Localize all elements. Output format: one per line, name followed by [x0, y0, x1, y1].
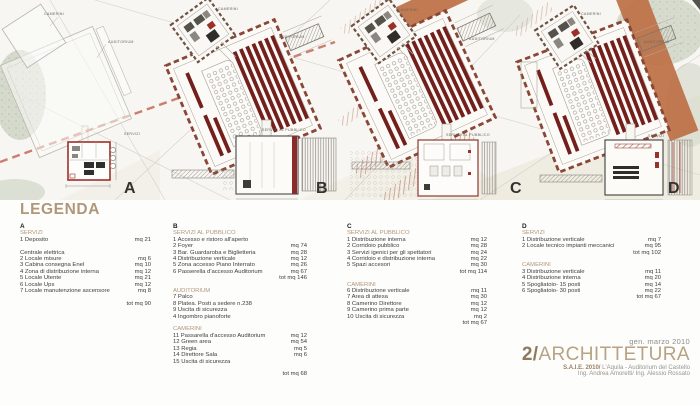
legend-item-label: 2 Locale tecnico impianti meccanici — [522, 243, 614, 249]
legend-item-label: 1 Deposito — [20, 237, 48, 243]
legend-item-label: 15 Uscita di sicurezza — [173, 359, 230, 365]
legend-section-total: tot mq 68 — [173, 371, 307, 377]
sheet-title-text: ARCHITTETURA — [538, 344, 690, 365]
legend-section: CAMERINI3 Distribuzione verticalemq 114 … — [522, 262, 661, 300]
sheet-title: 2/ARCHITTETURA — [522, 346, 690, 364]
legend-section: SERVIZI AL PUBBLICO1 Distribuzione inter… — [347, 230, 487, 275]
legend-section: SERVIZI AL PUBBLICO1 Accesso e ristoro a… — [173, 230, 307, 281]
legend-column-c: CSERVIZI AL PUBBLICO1 Distribuzione inte… — [347, 224, 487, 333]
plan-a-auditorium-label: AUDITORIUM — [108, 40, 134, 44]
presentation-board: CAMERINI AUDITORIUM SERVIZI CAMERINI AUD… — [0, 0, 700, 405]
plan-b-camerini-label: CAMERINI — [218, 7, 238, 11]
plan-a-letter: A — [124, 180, 136, 197]
legend-column-d: DSERVIZI1 Distribuzione verticalemq 72 L… — [522, 224, 661, 307]
legend-section: AUDITORIUM7 Palco8 Platea. Posti a seder… — [173, 288, 307, 320]
plan-b-servizi-label: SERVIZI AL PUBBLICO — [262, 128, 306, 132]
legend-section-total: tot mq 90 — [20, 301, 151, 307]
legend-item-label: 5 Spazi accesori — [347, 262, 390, 268]
legend-section-total: tot mq 67 — [522, 294, 661, 300]
legend-section: CAMERINI6 Distribuzione verticalemq 117 … — [347, 282, 487, 327]
legend-item-value: mq 30 — [471, 262, 487, 268]
legend-section: CAMERINI11 Passarella d'accesso Auditori… — [173, 326, 307, 377]
legend-section: SERVIZI1 Distribuzione verticalemq 72 Lo… — [522, 230, 661, 256]
title-block: gen. marzo 2010 2/ARCHITTETURA S.A.I.E. … — [522, 337, 690, 377]
plan-b-letter: B — [316, 180, 328, 197]
legend-section-total: tot mq 114 — [347, 269, 487, 275]
legend-item-label: 6 Passerella d'accesso Auditorium — [173, 269, 263, 275]
legend-section-total: tot mq 102 — [522, 250, 661, 256]
legend-column-a: ASERVIZI1 Depositomq 21Centrale elettric… — [20, 224, 151, 314]
plan-c-letter: C — [510, 180, 522, 197]
credits: Ing. Andrea Amoretti/ Ing. Alessio Rossa… — [522, 371, 690, 377]
legend-section: SERVIZI1 Depositomq 21Centrale elettrica… — [20, 230, 151, 307]
legend-item-label: 10 Uscita di sicurezza — [347, 314, 404, 320]
plan-c-camerini-label: CAMERINI — [398, 8, 418, 12]
legend-column-b: BSERVIZI AL PUBBLICO1 Accesso e ristoro … — [173, 224, 307, 384]
legend-item-label: 4 Ingombro pianoforte — [173, 314, 231, 320]
plan-d-servizi-label: SERVIZI — [648, 134, 664, 138]
plan-d-camerini-label: CAMERINI — [581, 12, 601, 16]
plan-d-auditorium-label: AUDITORIUM — [644, 40, 670, 44]
legend-item: 15 Uscita di sicurezza — [173, 359, 307, 365]
site-plans-drawing: CAMERINI AUDITORIUM SERVIZI CAMERINI AUD… — [0, 0, 700, 200]
legend-item-value: mq 6 — [294, 352, 307, 358]
legend-item: 4 Ingombro pianoforte — [173, 314, 307, 320]
plan-a-camerini-label: CAMERINI — [44, 12, 64, 16]
legend-item-value: mq 21 — [135, 237, 151, 243]
legend-item-label: 7 Locale manutenzione ascensore — [20, 288, 110, 294]
plan-c-auditorium-label: AUDITORIUM — [469, 37, 495, 41]
legend-item: 7 Locale manutenzione ascensoremq 8 — [20, 288, 151, 294]
legend-item-value: mq 8 — [138, 288, 151, 294]
legend-section-total: tot mq 146 — [173, 275, 307, 281]
sheet-number: 2/ — [522, 344, 539, 365]
plan-d-letter: D — [668, 180, 680, 197]
plan-b-auditorium-label: AUDITORIUM — [279, 35, 305, 39]
legend-section-total: tot mq 67 — [347, 320, 487, 326]
legend-title: LEGENDA — [20, 201, 100, 219]
plan-a-servizi-label: SERVIZI — [124, 132, 140, 136]
legend-item-label: 6 Spogliatoio- 30 posti — [522, 288, 580, 294]
plan-c-servizi-label: SERVIZI AL PUBBLICO — [446, 133, 490, 137]
legend-item-value: mq 95 — [645, 243, 661, 249]
